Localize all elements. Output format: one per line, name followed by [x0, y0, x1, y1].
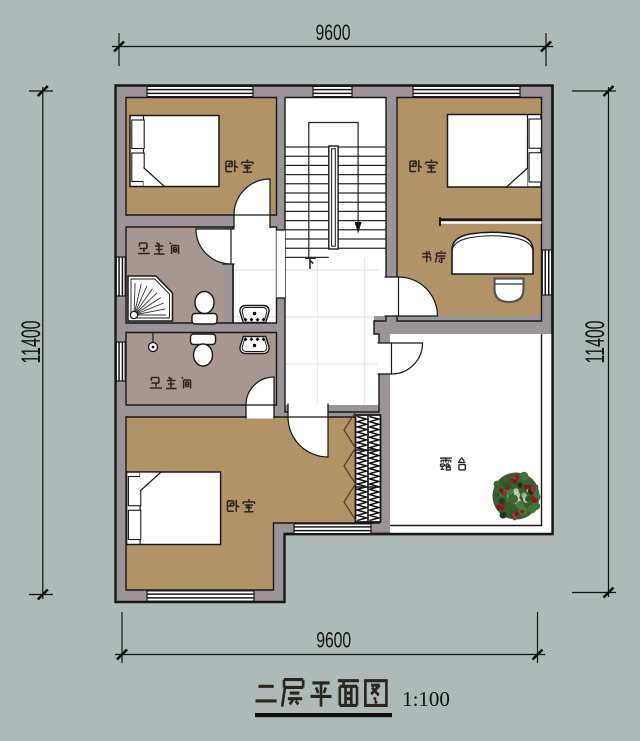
svg-text:9600: 9600 — [316, 20, 351, 45]
svg-text:11400: 11400 — [580, 321, 610, 364]
svg-text:11400: 11400 — [16, 321, 46, 364]
svg-text:1:100: 1:100 — [402, 687, 450, 711]
svg-text:9600: 9600 — [316, 628, 351, 653]
